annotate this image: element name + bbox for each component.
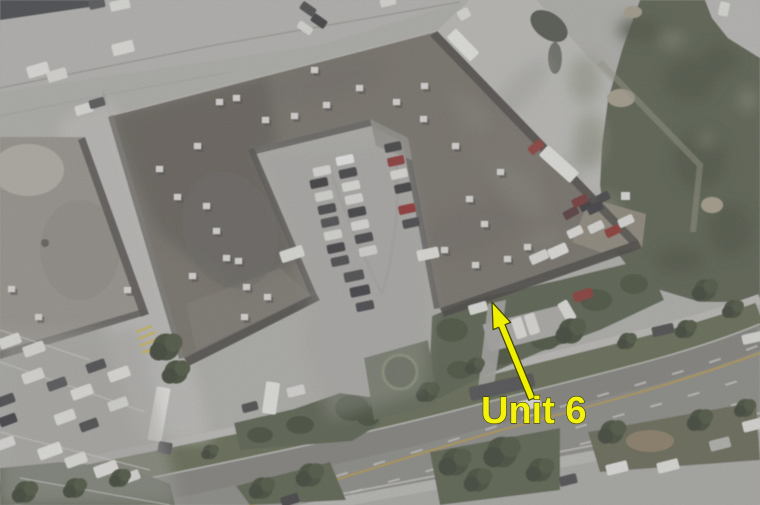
svg-text:Unit 6: Unit 6: [481, 390, 587, 432]
